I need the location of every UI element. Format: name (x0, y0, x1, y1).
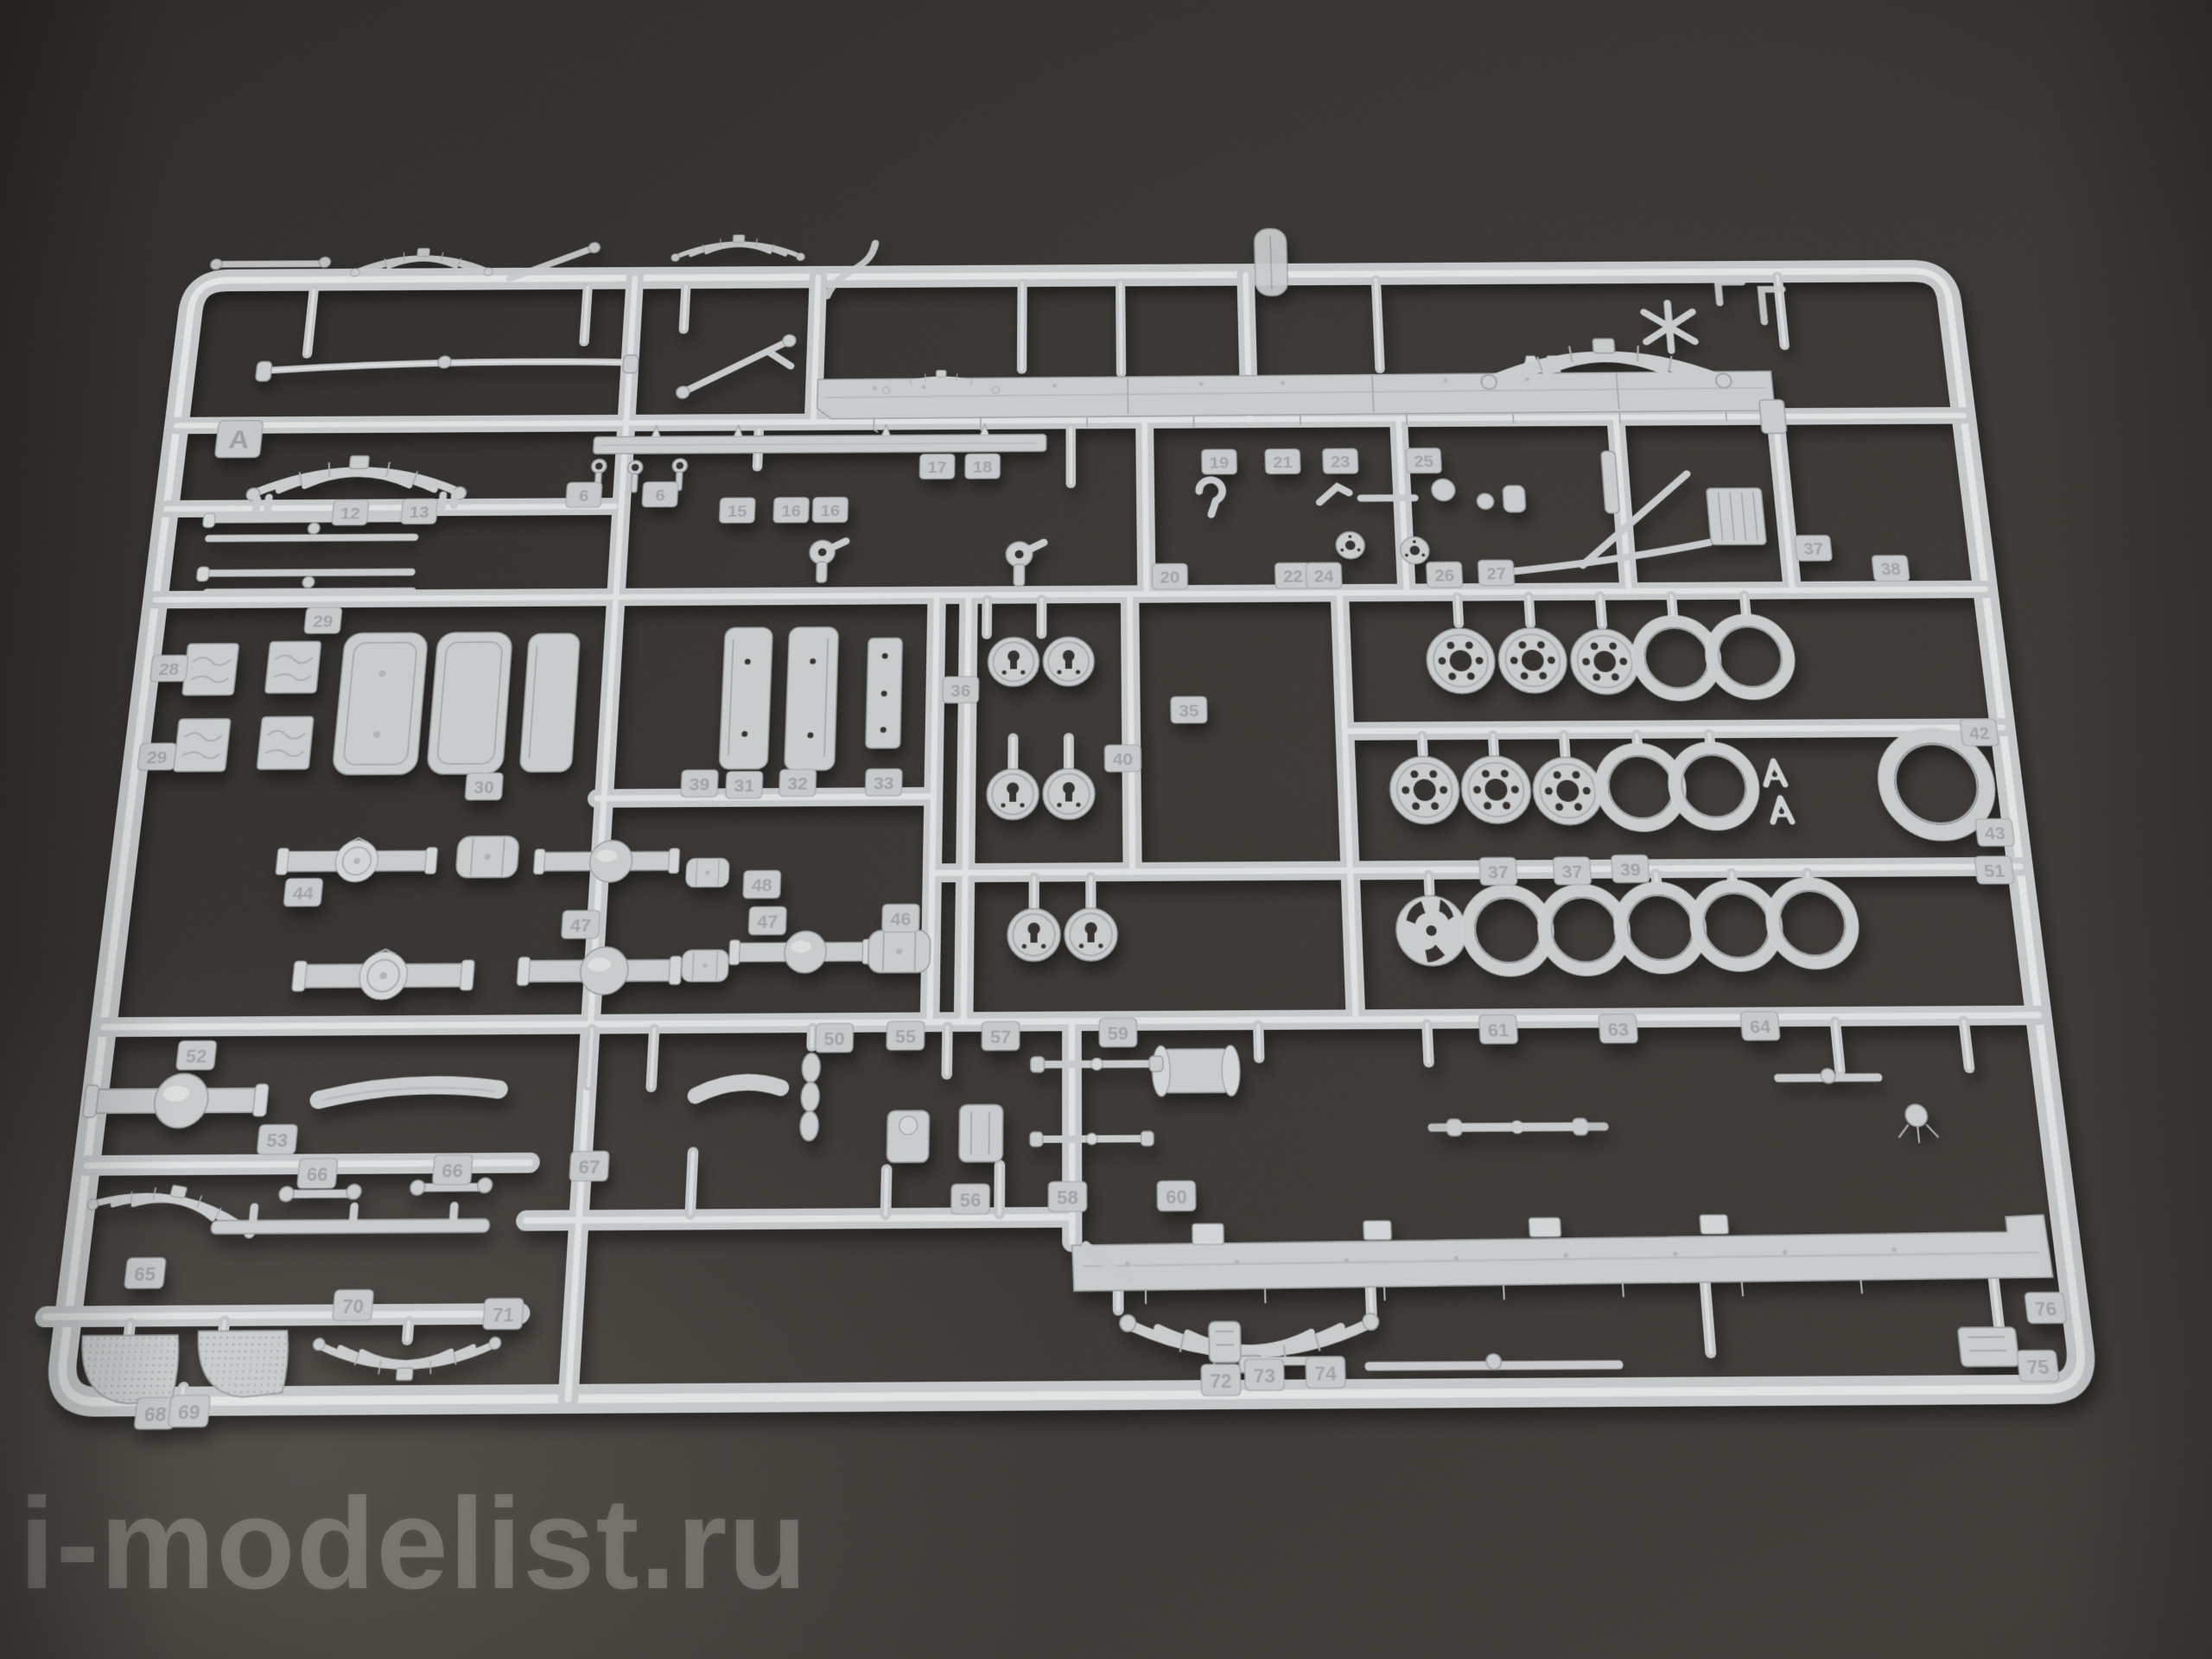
part-number-tag: 63 (1599, 1014, 1638, 1043)
svg-text:15: 15 (728, 503, 747, 521)
svg-text:76: 76 (2034, 1298, 2058, 1320)
part-number-tag: 47 (748, 906, 786, 935)
part-number-tag: 75 (2017, 1351, 2059, 1382)
part-number-tag: 25 (1406, 448, 1441, 474)
part-number-tag: 52 (176, 1040, 217, 1070)
watermark-text: i-modelist.ru (19, 1469, 808, 1618)
svg-text:25: 25 (1414, 453, 1433, 471)
svg-text:59: 59 (1108, 1024, 1128, 1045)
part-number-tag: 31 (726, 772, 763, 798)
svg-text:65: 65 (133, 1263, 157, 1286)
svg-text:60: 60 (1166, 1186, 1187, 1208)
sprue: A 12136615161617181921232520222426273738… (31, 225, 2088, 1429)
svg-text:70: 70 (341, 1295, 365, 1318)
part-number-tag: 50 (815, 1023, 853, 1052)
part-number-tag: 44 (283, 879, 323, 906)
part-number-tag: 30 (465, 772, 503, 799)
part-number-tag: 29 (304, 607, 342, 633)
part-number-tag: 55 (887, 1021, 925, 1050)
svg-text:52: 52 (185, 1046, 208, 1067)
cross-bar (211, 1206, 491, 1234)
part-number-tag: 28 (149, 655, 188, 681)
part-number-tag: 17 (919, 454, 955, 479)
svg-text:29: 29 (312, 613, 334, 632)
svg-text:21: 21 (1273, 454, 1293, 472)
svg-text:61: 61 (1487, 1020, 1509, 1041)
part-number-tag: 46 (882, 904, 919, 931)
part-number-tag: 24 (1306, 563, 1342, 588)
part-number-tag: 12 (332, 500, 369, 525)
sprue-letter-tag: A (215, 421, 264, 458)
svg-text:28: 28 (158, 660, 181, 679)
part-number-tag: 37 (1553, 857, 1591, 885)
svg-text:44: 44 (292, 884, 315, 904)
svg-text:6: 6 (578, 487, 589, 505)
svg-text:36: 36 (950, 682, 970, 701)
svg-text:69: 69 (177, 1402, 201, 1425)
svg-text:39: 39 (1619, 860, 1641, 880)
part-number-tag: 33 (865, 769, 902, 796)
part-number-tag: 72 (1201, 1364, 1241, 1395)
svg-text:66: 66 (441, 1160, 463, 1182)
part-number-tag: 37 (1479, 857, 1517, 885)
part-number-tag: 39 (1611, 855, 1650, 882)
part-number-tag: 32 (779, 769, 817, 796)
svg-text:31: 31 (734, 777, 754, 797)
part-number-tag: 51 (1974, 856, 2014, 884)
svg-text:63: 63 (1607, 1020, 1630, 1040)
svg-text:26: 26 (1434, 567, 1455, 586)
svg-text:12: 12 (340, 505, 360, 523)
part-number-tag: 42 (1960, 719, 1999, 746)
svg-text:19: 19 (1210, 454, 1230, 472)
svg-text:47: 47 (757, 912, 779, 932)
svg-text:46: 46 (890, 910, 911, 931)
svg-text:66: 66 (306, 1164, 329, 1185)
svg-text:33: 33 (874, 774, 894, 794)
part-number-tag: 6 (566, 482, 602, 507)
part-number-tag: 60 (1157, 1181, 1196, 1211)
part-number-tag: 6 (642, 482, 678, 507)
part-number-tag: 53 (257, 1125, 297, 1154)
svg-text:29: 29 (146, 748, 168, 768)
svg-text:37: 37 (1802, 540, 1824, 558)
svg-text:48: 48 (751, 875, 772, 895)
sprue-stage: A 12136615161617181921232520222426273738… (0, 86, 2212, 1659)
svg-text:74: 74 (1314, 1363, 1337, 1385)
svg-text:56: 56 (960, 1190, 982, 1211)
part-number-tag: 21 (1265, 449, 1300, 474)
svg-text:38: 38 (1880, 560, 1902, 579)
part-number-tag: 76 (2024, 1293, 2067, 1324)
part-number-tag: 67 (569, 1151, 609, 1181)
svg-text:55: 55 (895, 1027, 917, 1047)
part-number-tag: 70 (333, 1290, 374, 1321)
part-number-tag: 74 (1306, 1357, 1345, 1388)
tow-shackles (1764, 761, 1792, 822)
svg-text:27: 27 (1486, 565, 1507, 584)
part-number-tag: 56 (951, 1184, 990, 1214)
part-number-tag: 23 (1323, 448, 1358, 474)
part-number-tag: 65 (124, 1258, 167, 1289)
part-number-tag: 38 (1872, 556, 1910, 582)
part-number-tag: 73 (1244, 1359, 1284, 1390)
part-number-tag: 20 (1152, 563, 1187, 589)
svg-text:37: 37 (1561, 862, 1583, 882)
part-number-tag: 59 (1099, 1018, 1136, 1046)
svg-text:68: 68 (143, 1403, 168, 1427)
svg-text:42: 42 (1968, 724, 1991, 743)
part-number-tag: 61 (1479, 1015, 1518, 1044)
svg-text:47: 47 (569, 916, 591, 937)
part-number-tag: 36 (943, 677, 979, 703)
part-number-tag: 40 (1105, 745, 1141, 772)
svg-text:57: 57 (990, 1027, 1011, 1047)
part-number-tag: 69 (168, 1395, 210, 1427)
svg-text:71: 71 (492, 1304, 515, 1326)
sprue-letter: A (227, 424, 251, 454)
exhaust-rods (195, 512, 420, 593)
tie-rods (253, 334, 796, 401)
svg-text:30: 30 (474, 778, 495, 798)
svg-text:53: 53 (265, 1130, 289, 1152)
svg-text:43: 43 (1984, 823, 2006, 843)
part-number-tag: 35 (1171, 696, 1207, 723)
part-number-tag: 26 (1427, 562, 1463, 588)
svg-text:23: 23 (1331, 454, 1351, 472)
part-number-tag: 47 (562, 911, 601, 939)
svg-text:40: 40 (1113, 750, 1133, 770)
svg-text:64: 64 (1749, 1017, 1771, 1038)
svg-text:16: 16 (820, 502, 840, 520)
part-number-tag: 27 (1478, 560, 1514, 586)
svg-text:51: 51 (1983, 861, 2005, 881)
svg-text:37: 37 (1488, 862, 1510, 882)
svg-text:39: 39 (689, 775, 709, 795)
svg-text:32: 32 (787, 774, 808, 794)
part-number-tag: 43 (1975, 818, 2015, 846)
winch-and-driveline (799, 1043, 1607, 1163)
svg-text:16: 16 (781, 502, 801, 520)
svg-text:18: 18 (973, 459, 993, 477)
wheel-drums (985, 637, 1117, 962)
axle-housings (81, 834, 932, 1128)
part-number-tag: 29 (137, 743, 176, 770)
svg-text:13: 13 (409, 504, 429, 522)
part-number-tag: 16 (773, 498, 809, 523)
svg-text:20: 20 (1160, 569, 1179, 588)
svg-text:67: 67 (578, 1157, 601, 1179)
part-number-tag: 58 (1048, 1181, 1086, 1211)
photo-canvas: A 12136615161617181921232520222426273738… (0, 0, 2212, 1659)
svg-text:17: 17 (927, 459, 947, 477)
svg-text:6: 6 (655, 486, 665, 505)
svg-text:50: 50 (823, 1029, 845, 1050)
part-number-tag: 16 (812, 497, 848, 522)
part-number-tag: 48 (743, 870, 781, 898)
part-number-tag: 66 (432, 1154, 473, 1185)
part-number-tag: 19 (1202, 449, 1237, 474)
part-number-tag: 64 (1740, 1012, 1780, 1040)
svg-text:73: 73 (1254, 1365, 1276, 1388)
part-number-tag: 57 (982, 1021, 1019, 1050)
svg-text:72: 72 (1210, 1370, 1232, 1393)
part-number-tag: 39 (681, 770, 718, 797)
svg-text:58: 58 (1057, 1187, 1078, 1209)
part-number-tag: 18 (965, 454, 1000, 479)
part-number-tag: 66 (297, 1159, 338, 1189)
part-number-tag: 37 (1795, 536, 1833, 561)
svg-text:75: 75 (2026, 1356, 2050, 1378)
part-number-tag: 15 (719, 498, 755, 523)
mud-flaps (174, 641, 321, 771)
sprue-photo: A 12136615161617181921232520222426273738… (0, 86, 2212, 1659)
front-bumpers (319, 1068, 1879, 1099)
part-number-tag: 71 (483, 1299, 524, 1330)
svg-text:35: 35 (1179, 702, 1198, 721)
part-number-tag: 13 (401, 499, 438, 524)
chassis-rail-bottom (1072, 1213, 2056, 1305)
svg-text:24: 24 (1314, 568, 1334, 587)
svg-text:22: 22 (1283, 568, 1303, 587)
